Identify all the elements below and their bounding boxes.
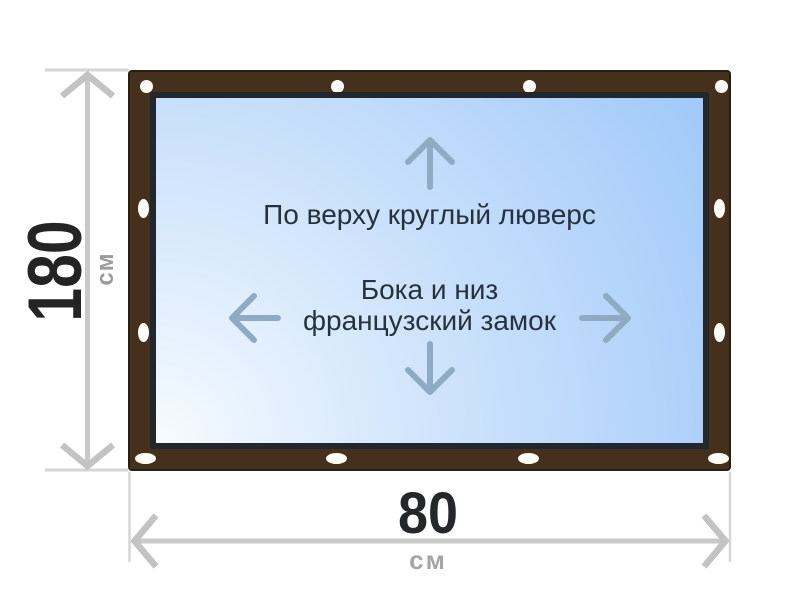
height-dimension-value: 180 — [16, 207, 96, 335]
note-top-eyelets: По верху круглый люверс — [156, 199, 703, 230]
grommet-icon — [135, 453, 156, 464]
grommet-icon — [714, 323, 725, 342]
arrow-up-icon — [408, 140, 452, 187]
width-dimension-value: 80 — [354, 484, 503, 544]
grommet-icon — [138, 199, 149, 218]
tarp-cover: По верху круглый люверс Бока и низ франц… — [128, 70, 731, 471]
note-sides-bottom-lock: Бока и низ французский замок — [156, 274, 703, 336]
grommet-icon — [518, 453, 539, 464]
grommet-icon — [326, 453, 347, 464]
fastening-arrows — [156, 98, 703, 443]
height-dimension-unit: см — [91, 239, 121, 299]
width-dimension-unit: см — [378, 547, 478, 573]
grommet-icon — [715, 80, 728, 93]
arrow-down-icon — [408, 344, 452, 392]
note-sides-bottom-line2: французский замок — [156, 305, 703, 336]
grommet-icon — [138, 323, 149, 342]
note-sides-bottom-line1: Бока и низ — [156, 274, 703, 305]
tarp-window-panel: По верху круглый люверс Бока и низ франц… — [150, 92, 709, 449]
tarpaulin-dimension-diagram: По верху круглый люверс Бока и низ франц… — [0, 0, 800, 600]
grommet-icon — [714, 199, 725, 218]
grommet-icon — [708, 453, 729, 464]
